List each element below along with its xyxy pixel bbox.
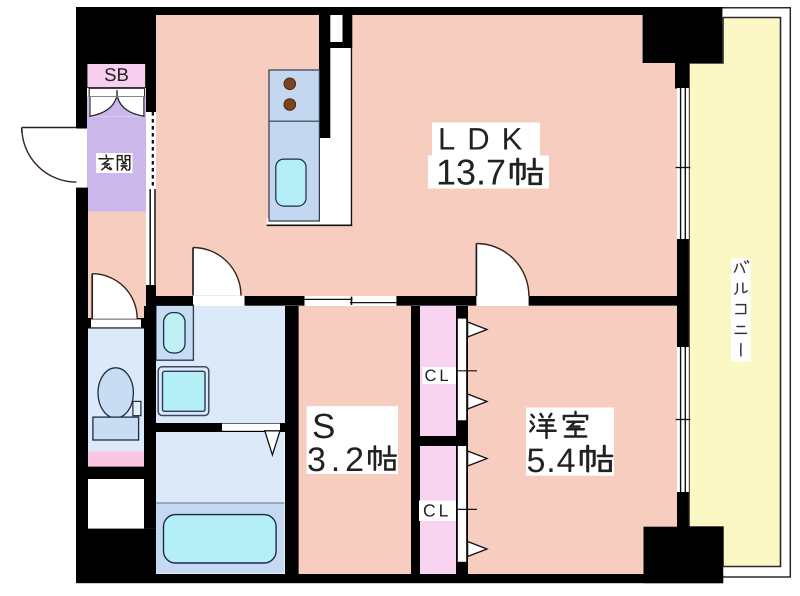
svg-text:CL: CL bbox=[423, 501, 451, 521]
svg-text:3.2: 3.2 bbox=[307, 441, 364, 479]
svg-text:5.4: 5.4 bbox=[527, 442, 576, 480]
svg-text:13.7: 13.7 bbox=[436, 152, 506, 193]
svg-text:SB: SB bbox=[104, 64, 129, 85]
svg-text:CL: CL bbox=[425, 367, 452, 385]
